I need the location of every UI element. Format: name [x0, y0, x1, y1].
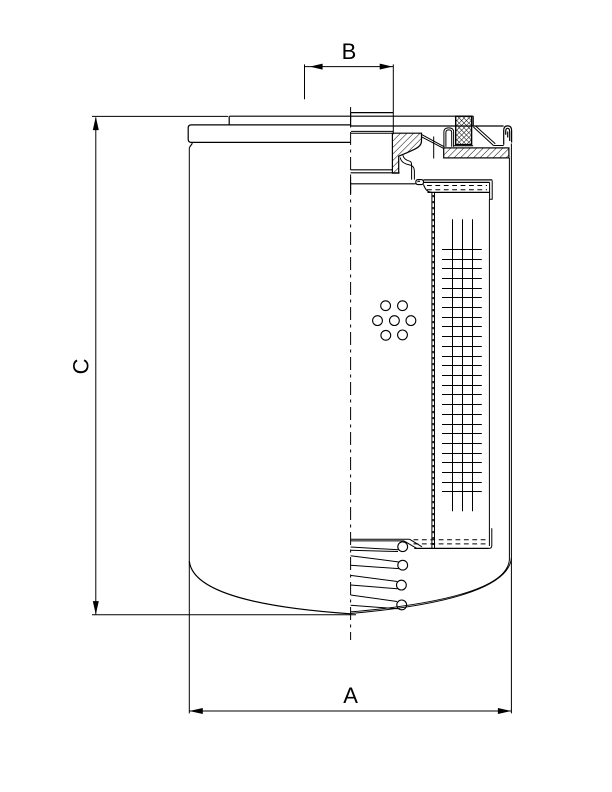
- svg-text:C: C: [69, 358, 94, 374]
- svg-text:A: A: [343, 683, 358, 708]
- svg-text:B: B: [342, 39, 357, 64]
